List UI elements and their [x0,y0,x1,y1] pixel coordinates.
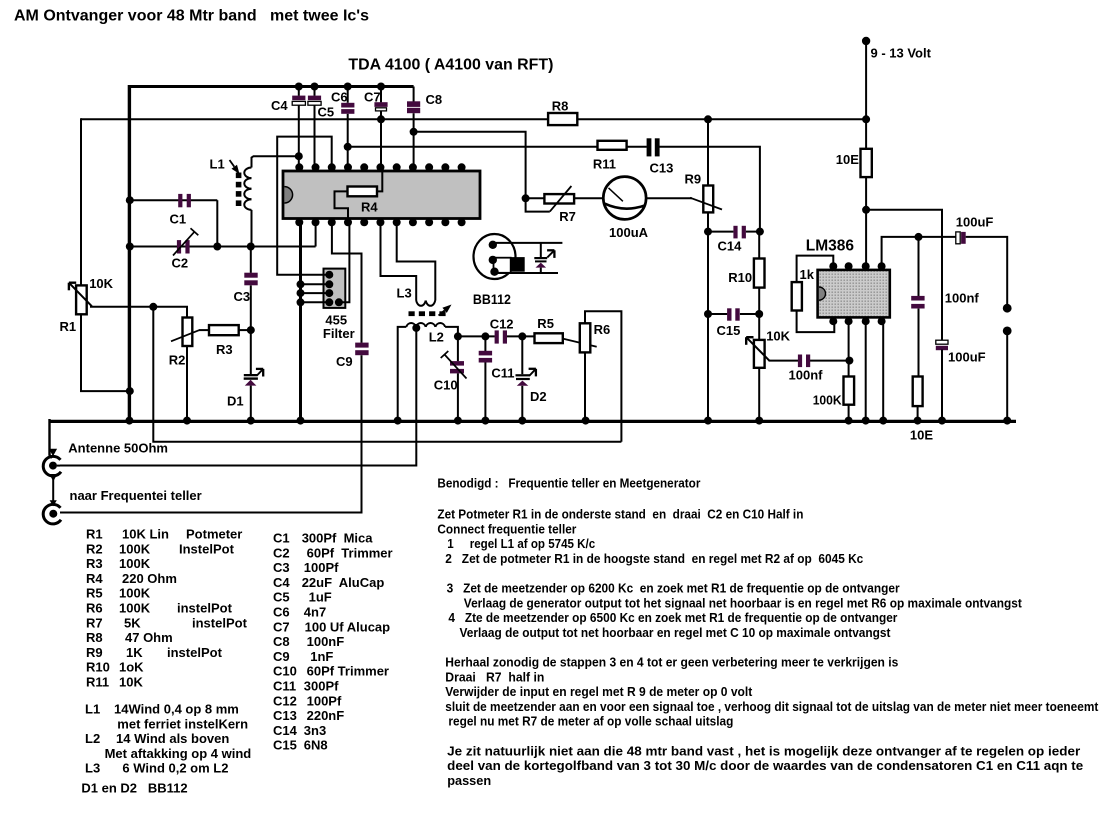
svg-text:R5: R5 [86,586,103,601]
svg-text:R10: R10 [86,660,110,675]
svg-text:6 Wind 0,2 om L2: 6 Wind 0,2 om L2 [122,761,228,776]
svg-text:R3: R3 [86,556,103,571]
svg-text:Verlaag de generator output to: Verlaag de generator output tot het sign… [464,595,1023,610]
svg-text:100Pf: 100Pf [304,560,339,575]
svg-text:R7: R7 [86,615,103,630]
svg-text:6N8: 6N8 [304,738,328,753]
svg-text:5K: 5K [124,615,141,630]
svg-text:C1: C1 [170,212,187,227]
svg-text:R4: R4 [361,200,378,215]
svg-text:10K Lin: 10K Lin [122,527,169,542]
svg-text:C1: C1 [273,531,290,546]
svg-text:R1: R1 [86,527,103,542]
svg-text:C11: C11 [273,679,296,694]
svg-text:10K: 10K [119,675,143,690]
svg-text:R2: R2 [169,353,186,368]
svg-text:L2: L2 [429,330,444,345]
svg-text:met ferriet instelKern: met ferriet instelKern [117,716,248,731]
svg-text:9 - 13 Volt: 9 - 13 Volt [871,46,932,61]
svg-text:R6: R6 [594,322,611,337]
svg-text:R8: R8 [86,630,103,645]
svg-text:47 Ohm: 47 Ohm [125,630,173,645]
svg-text:60Pf Trimmer: 60Pf Trimmer [303,664,389,679]
svg-text:100nF: 100nF [303,634,344,649]
svg-text:100uF: 100uF [948,350,986,365]
svg-text:C12: C12 [490,317,514,332]
svg-text:10K: 10K [766,329,790,344]
svg-text:100K: 100K [119,586,151,601]
svg-text:Met aftakking op 4 wind: Met aftakking op 4 wind [105,746,252,761]
svg-text:1 regel L1 af op 5745 K/c: 1 regel L1 af op 5745 K/c [447,536,595,551]
svg-text:D1: D1 [227,394,244,409]
svg-text:100nf: 100nf [945,291,980,306]
svg-text:naar Frequentei teller: naar Frequentei teller [70,488,202,503]
svg-text:C3: C3 [234,289,251,304]
svg-text:R10: R10 [728,270,752,285]
svg-text:R4: R4 [86,571,103,586]
svg-text:C7: C7 [364,90,381,105]
svg-text:L2: L2 [85,731,100,746]
svg-text:100K: 100K [813,393,843,408]
svg-text:R8: R8 [552,99,569,114]
svg-text:300Pf: 300Pf [304,679,339,694]
svg-text:R9: R9 [685,171,702,186]
svg-text:Zet Potmeter R1 in de onderste: Zet Potmeter R1 in de onderste stand en … [437,507,803,522]
svg-text:R2: R2 [86,541,103,556]
svg-text:60Pf Trimmer: 60Pf Trimmer [303,545,393,560]
svg-text:3n3: 3n3 [304,723,326,738]
svg-text:4 Zte de meetzender op 6500: 4 Zte de meetzender op 6500 Kc en zoek m… [448,610,897,625]
svg-text:R9: R9 [86,645,103,660]
svg-text:100K: 100K [119,601,151,616]
svg-text:C9: C9 [273,649,290,664]
svg-text:C4: C4 [271,98,288,113]
svg-text:AM Ontvanger voor 48 Mtr band: AM Ontvanger voor 48 Mtr band met twee I… [14,7,369,24]
svg-text:R11: R11 [86,675,109,690]
svg-text:D2: D2 [530,389,547,404]
svg-text:10E: 10E [910,428,933,443]
svg-text:D1 en D2 BB112: D1 en D2 BB112 [81,781,187,796]
svg-text:1nF: 1nF [303,649,333,664]
svg-text:C6: C6 [331,90,348,105]
svg-text:C2: C2 [172,256,189,271]
svg-text:C10: C10 [273,664,297,679]
svg-text:passen: passen [447,773,491,788]
svg-text:220 Ohm: 220 Ohm [122,571,177,586]
svg-text:1oK: 1oK [119,660,144,675]
svg-text:Verlaag de output tot net hoor: Verlaag de output tot net hoorbaar en re… [460,625,892,640]
svg-text:C4: C4 [273,575,290,590]
svg-text:14Wind 0,4 op 8 mm: 14Wind 0,4 op 8 mm [114,702,239,717]
svg-text:BB112: BB112 [473,291,511,307]
svg-text:Potmeter: Potmeter [186,527,242,542]
svg-text:L1: L1 [210,157,225,172]
svg-text:100uF: 100uF [956,215,994,230]
svg-text:C8: C8 [426,92,443,107]
svg-text:R5: R5 [534,316,554,331]
svg-text:100uA: 100uA [609,225,649,240]
svg-text:100 Uf Alucap: 100 Uf Alucap [301,619,390,634]
svg-text:C2: C2 [273,545,290,560]
svg-text:Benodigd : Frequentie teller: Benodigd : Frequentie teller en Meetgene… [437,476,700,491]
svg-text:22uF AluCap: 22uF AluCap [302,575,385,590]
svg-text:C7: C7 [273,619,290,634]
svg-text:C15: C15 [273,738,297,753]
svg-text:C11: C11 [491,366,514,381]
svg-text:R1: R1 [60,319,77,334]
svg-text:deel van de kortegolfband van: deel van de kortegolfband van 3 tot 30 M… [447,758,1083,773]
svg-text:4n7: 4n7 [304,605,326,620]
svg-text:C12: C12 [273,693,297,708]
svg-text:Herhaal zonodig de stappen 3 e: Herhaal zonodig de stappen 3 en 4 tot er… [445,655,898,670]
svg-text:300Pf Mica: 300Pf Mica [302,531,374,546]
svg-text:C15: C15 [717,323,741,338]
svg-text:3 Zet de meetzender op 6200: 3 Zet de meetzender op 6200 Kc en zoek m… [447,581,900,596]
svg-text:Je zit natuurlijk niet aan die: Je zit natuurlijk niet aan die 48 mtr ba… [447,743,1080,758]
svg-text:R7: R7 [559,209,576,224]
svg-text:10K: 10K [89,276,113,291]
svg-text:regel nu met R7 de meter af op: regel nu met R7 de meter af op volle sch… [448,714,733,729]
svg-text:R6: R6 [86,601,103,616]
svg-text:Connect frequentie teller: Connect frequentie teller [437,521,576,536]
svg-text:2 Zet de potmeter R1 in de h: 2 Zet de potmeter R1 in de hoogste stand… [445,551,863,566]
svg-text:L3: L3 [85,761,100,776]
svg-text:sluit de meetzender aan en voo: sluit de meetzender aan en voor een sign… [445,699,1099,714]
svg-text:R3: R3 [216,342,233,357]
svg-text:instelPot: instelPot [177,601,233,616]
svg-text:C14: C14 [718,239,743,254]
svg-text:InstelPot: InstelPot [179,541,235,556]
svg-text:L1: L1 [85,702,100,717]
svg-text:Filter: Filter [323,326,355,341]
svg-text:C5: C5 [318,105,335,120]
svg-text:Antenne 50Ohm: Antenne 50Ohm [68,441,168,456]
svg-text:220nF: 220nF [303,708,344,723]
svg-text:R11: R11 [593,157,616,172]
svg-text:C8: C8 [273,634,290,649]
svg-text:Verwijder de input en regel me: Verwijder de input en regel met R 9 de m… [445,684,753,699]
svg-text:C14: C14 [273,723,298,738]
svg-text:14 Wind als boven: 14 Wind als boven [116,731,229,746]
svg-text:C10: C10 [434,378,458,393]
svg-text:100Pf: 100Pf [303,693,342,708]
svg-text:C3: C3 [273,560,290,575]
svg-text:C13: C13 [650,161,674,176]
svg-text:Draai R7 half in: Draai R7 half in [445,669,544,684]
svg-text:100nf: 100nf [789,368,824,383]
svg-text:1k: 1k [800,267,815,282]
svg-text:100K: 100K [119,556,151,571]
svg-text:L3: L3 [397,286,412,301]
svg-text:1uF: 1uF [305,590,332,605]
svg-text:TDA 4100 ( A4100 van RFT): TDA 4100 ( A4100 van RFT) [348,57,553,74]
svg-text:C13: C13 [273,708,297,723]
svg-text:10E: 10E [836,152,859,167]
svg-text:100K: 100K [119,541,151,556]
svg-text:LM386: LM386 [806,238,855,255]
svg-text:1K: 1K [126,645,143,660]
svg-text:instelPot: instelPot [192,615,248,630]
svg-text:instelPot: instelPot [167,645,223,660]
svg-text:C5: C5 [273,590,290,605]
svg-text:C6: C6 [273,605,290,620]
svg-text:C9: C9 [336,354,353,369]
